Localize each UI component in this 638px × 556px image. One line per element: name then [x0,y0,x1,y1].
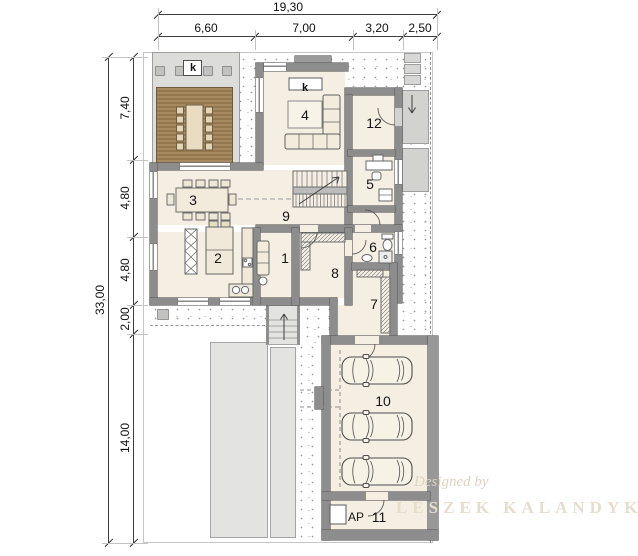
room-label-10: 10 [375,393,391,409]
room-label-5: 5 [366,176,374,192]
room-label-12: 12 [366,115,382,131]
wardrobe [357,270,383,277]
floor-plan-drawing: k [0,0,638,556]
room-label-8: 8 [331,265,339,281]
dim-line-left-segments [133,57,134,543]
room-label-6: 6 [369,239,377,255]
extension-line [403,30,404,50]
extension-line [102,543,148,544]
boiler-box [330,505,346,524]
room-label-3: 3 [189,192,197,208]
dining-set [167,180,236,220]
car-3 [342,456,412,488]
extension-line [255,30,256,50]
dim-top-seg-1: 7,00 [292,21,315,35]
dim-top-total: 19,30 [273,0,303,14]
room-label-2: 2 [214,250,222,266]
extension-line [127,160,148,161]
room-label-4: 4 [301,107,309,123]
living-room-furniture [285,78,340,149]
dim-left-seg-1: 4,80 [118,186,132,209]
dim-left-seg-3: 2,00 [118,307,132,330]
room-label-1: 1 [281,250,289,266]
staircase [293,171,347,207]
dim-left-seg-4: 14,00 [118,423,132,453]
room-label-9: 9 [282,208,290,224]
dim-left-seg-0: 7,40 [118,96,132,119]
exterior-steps-treads [269,314,297,340]
room-label-ap: AP [348,510,364,524]
extension-line [127,305,148,306]
outdoor-dining-set [177,105,213,150]
closet [301,233,345,242]
watermark-designer-name: LESZEK KALANDYK [396,498,638,518]
wardrobe [381,277,390,333]
fireplace-label: k [302,82,308,94]
dim-top-seg-0: 6,60 [194,21,217,35]
room-label-11: 11 [372,509,387,525]
extension-line [353,30,354,50]
car-1 [342,355,412,387]
car-2 [342,411,412,443]
dim-left-total: 33,00 [93,285,107,315]
extension-line [102,57,148,58]
dim-line-top-segments [158,36,437,37]
room1-furniture [257,241,269,285]
extension-line [127,334,148,335]
dim-top-seg-3: 2,50 [408,21,431,35]
extension-line [437,8,438,50]
garage-dashed-lines [300,350,342,488]
bathroom-fixtures [362,234,393,263]
watermark-designed-by: Designed by [414,474,489,491]
dim-line-left-total [108,57,109,543]
furniture-overlay [0,0,638,556]
room-label-7: 7 [370,296,378,312]
extension-line [158,8,159,50]
dim-left-seg-2: 4,80 [118,258,132,281]
dim-line-top-total [158,14,437,15]
extension-line [127,237,148,238]
porch-arrow [409,95,416,113]
dim-top-seg-2: 3,20 [365,21,388,35]
